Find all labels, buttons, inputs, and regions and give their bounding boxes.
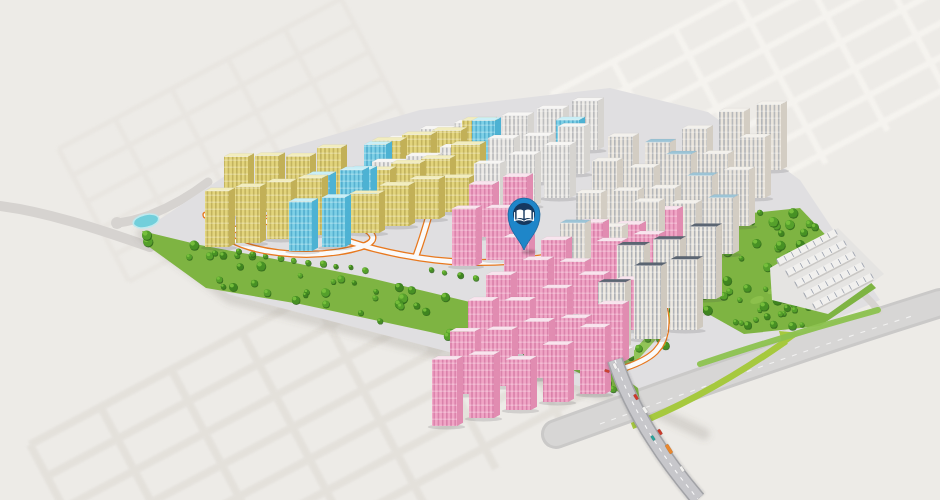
masterplan-canvas bbox=[0, 0, 940, 500]
building-white-central bbox=[540, 142, 579, 202]
building-pink-main bbox=[539, 341, 577, 405]
building-pink-main bbox=[465, 351, 503, 421]
building-pink-main bbox=[502, 356, 540, 413]
building-cyan-west bbox=[285, 198, 320, 254]
site-plan-svg bbox=[0, 0, 940, 500]
building-yellow-west bbox=[232, 184, 268, 247]
building-yellow-west bbox=[201, 188, 237, 251]
building-beige-east-south bbox=[629, 263, 670, 343]
building-pink-main bbox=[428, 356, 466, 429]
building-pink-main bbox=[576, 324, 614, 398]
building-cyan-west bbox=[318, 194, 353, 250]
building-beige-east-south bbox=[665, 256, 706, 333]
building-pink-near-marker bbox=[448, 205, 484, 269]
building-yellow-central bbox=[345, 190, 389, 236]
